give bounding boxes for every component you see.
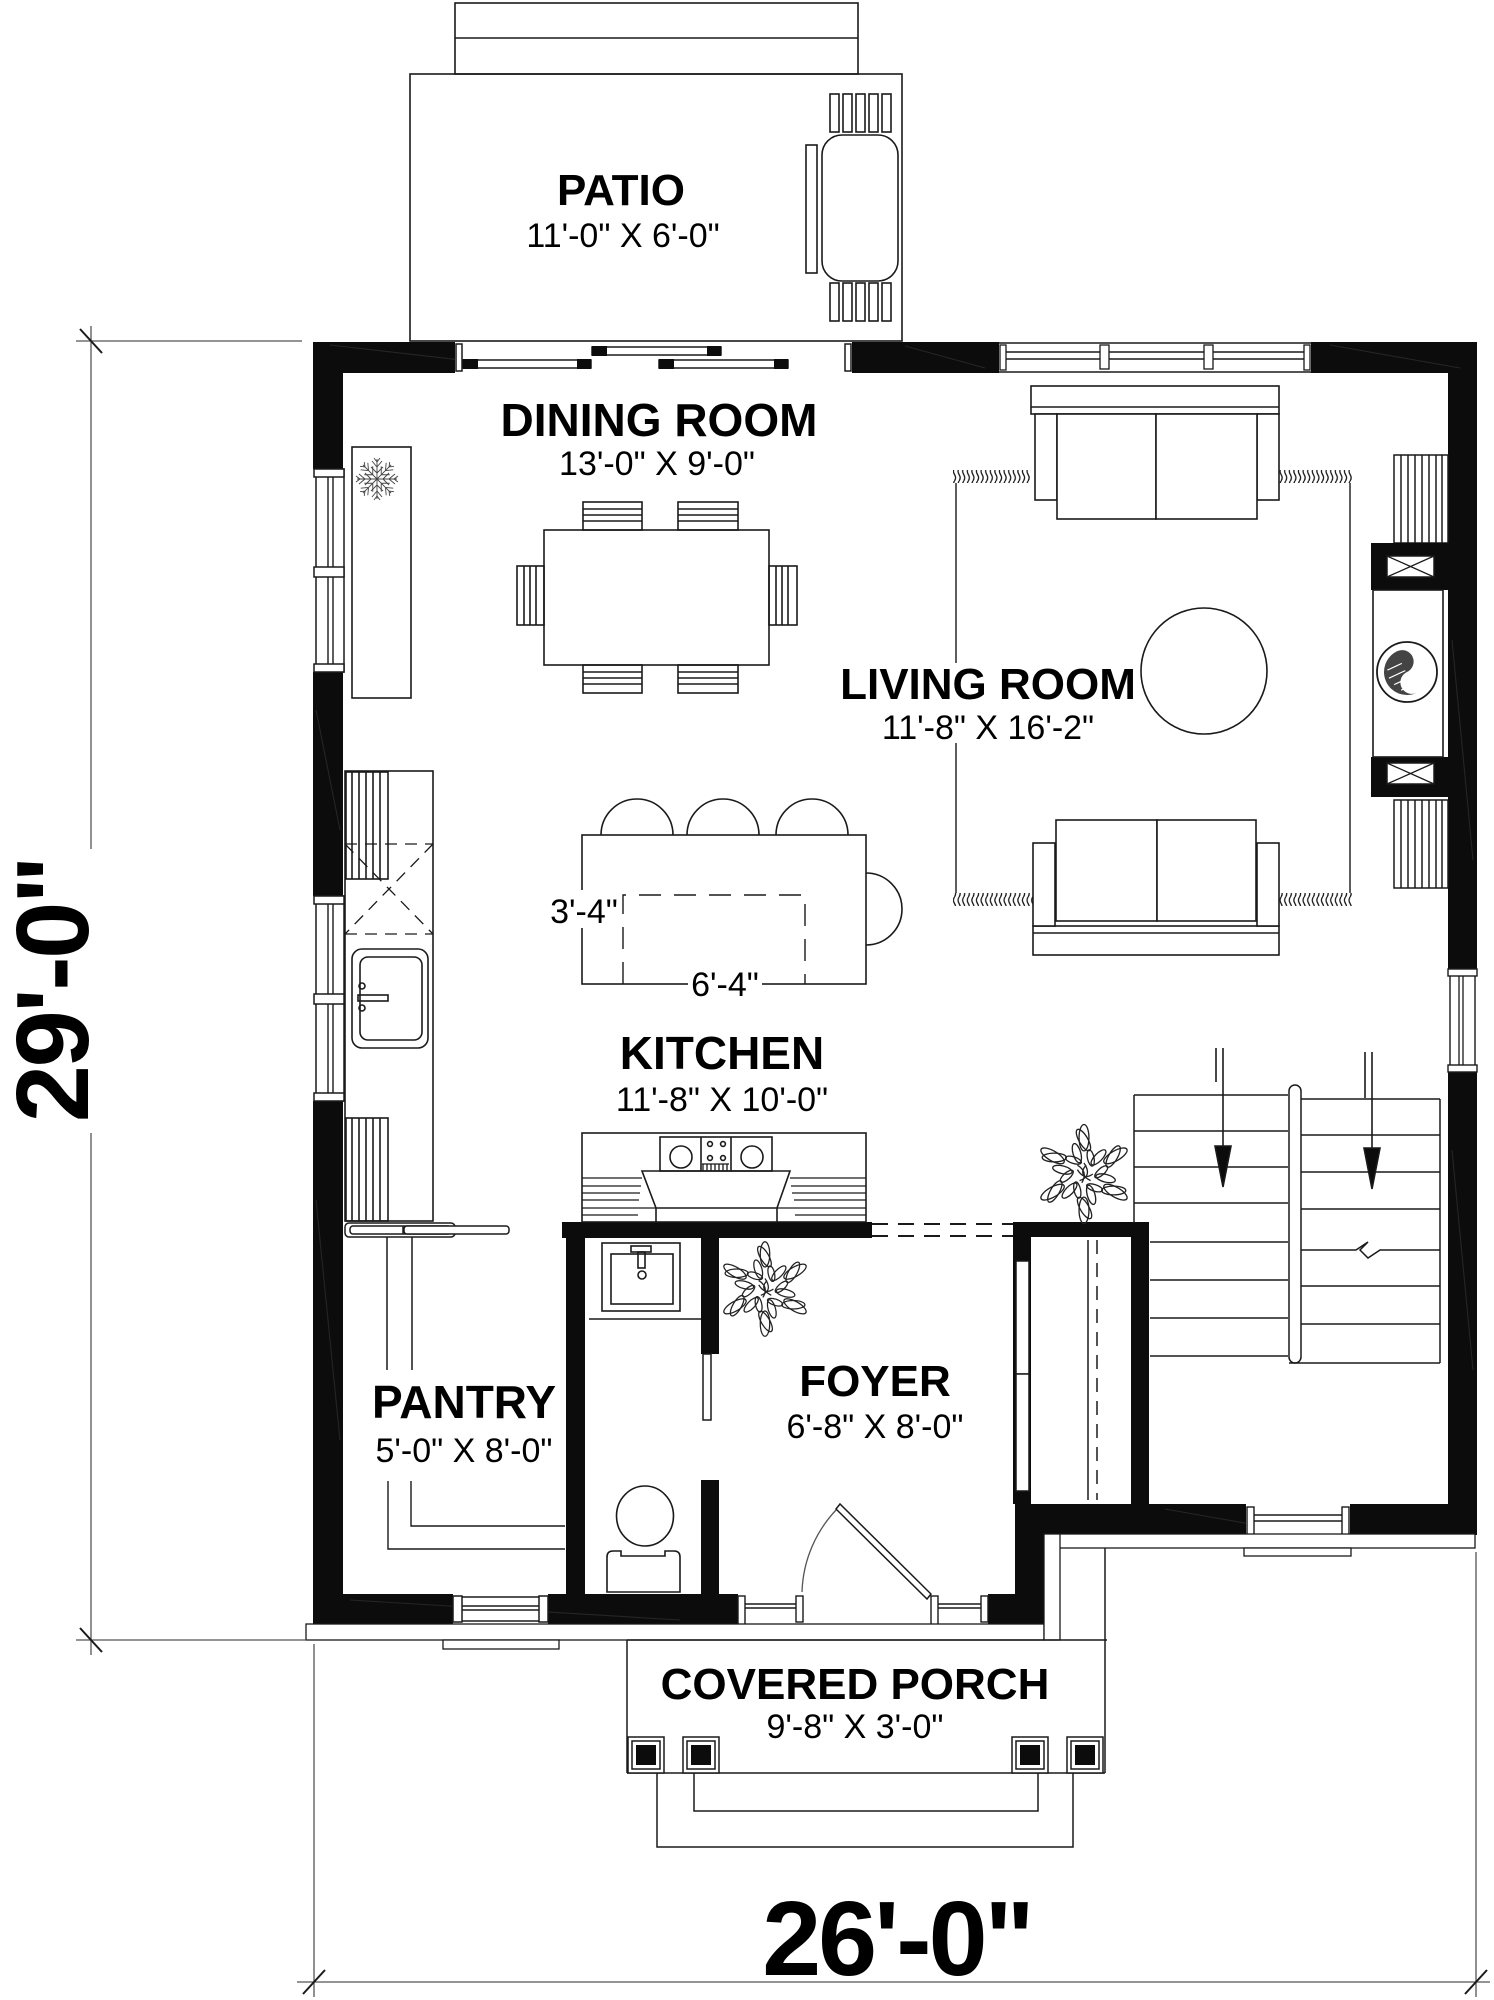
svg-text:6'-4": 6'-4"	[691, 966, 759, 1004]
svg-text:PANTRY: PANTRY	[372, 1376, 556, 1428]
svg-text:KITCHEN: KITCHEN	[620, 1027, 824, 1079]
svg-text:29'-0": 29'-0"	[0, 858, 110, 1122]
svg-text:11'-8" X 10'-0": 11'-8" X 10'-0"	[616, 1081, 828, 1119]
svg-text:26'-0": 26'-0"	[762, 1880, 1032, 1998]
svg-text:PATIO: PATIO	[557, 166, 685, 215]
svg-text:6'-8" X 8'-0": 6'-8" X 8'-0"	[787, 1408, 964, 1446]
svg-text:COVERED PORCH: COVERED PORCH	[661, 1660, 1050, 1709]
svg-text:FOYER: FOYER	[799, 1357, 951, 1406]
svg-text:LIVING ROOM: LIVING ROOM	[840, 660, 1136, 709]
svg-text:DINING ROOM: DINING ROOM	[501, 394, 818, 446]
svg-text:11'-8" X 16'-2": 11'-8" X 16'-2"	[882, 709, 1094, 747]
svg-text:9'-8" X 3'-0": 9'-8" X 3'-0"	[767, 1708, 944, 1746]
svg-text:11'-0" X 6'-0": 11'-0" X 6'-0"	[526, 217, 719, 255]
svg-text:13'-0" X 9'-0": 13'-0" X 9'-0"	[559, 445, 755, 483]
svg-text:5'-0" X 8'-0": 5'-0" X 8'-0"	[376, 1432, 553, 1470]
svg-text:3'-4": 3'-4"	[550, 893, 618, 931]
